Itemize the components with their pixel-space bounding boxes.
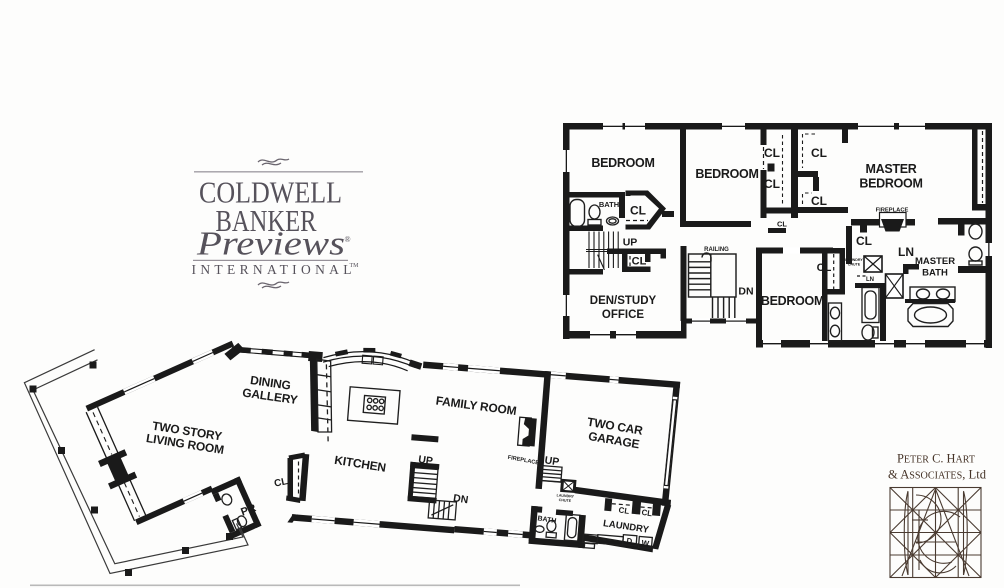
svg-text:RAILING: RAILING [704, 247, 729, 253]
svg-text:MASTER: MASTER [915, 256, 955, 267]
svg-text:CL: CL [811, 146, 827, 160]
svg-text:DN: DN [738, 286, 753, 298]
svg-text:CL: CL [273, 476, 288, 490]
svg-text:LN: LN [898, 245, 914, 259]
svg-text:FAMILY ROOM: FAMILY ROOM [435, 394, 517, 418]
svg-text:BEDROOM: BEDROOM [695, 167, 758, 181]
svg-text:TM: TM [350, 263, 360, 269]
svg-text:UP: UP [623, 237, 638, 249]
svg-text:LAUNDRY: LAUNDRY [845, 258, 863, 262]
svg-text:MASTER: MASTER [866, 162, 917, 176]
svg-text:CL: CL [764, 146, 780, 160]
svg-text:LN: LN [866, 277, 874, 283]
svg-text:UP: UP [417, 453, 433, 467]
svg-text:& ASSOCIATES, Ltd: & ASSOCIATES, Ltd [888, 467, 986, 482]
svg-text:CL: CL [817, 262, 832, 274]
svg-text:CL: CL [856, 234, 872, 248]
svg-text:LAUNDRY: LAUNDRY [602, 518, 650, 536]
svg-text:CL: CL [764, 177, 780, 191]
svg-text:KITCHEN: KITCHEN [333, 453, 386, 475]
svg-text:PETER C. HART: PETER C. HART [897, 451, 976, 466]
svg-text:Previews: Previews [196, 226, 345, 263]
svg-text:BEDROOM: BEDROOM [859, 177, 922, 191]
svg-text:CL: CL [811, 194, 827, 208]
svg-text:FIREPLACE: FIREPLACE [507, 455, 540, 467]
svg-text:BATH: BATH [922, 268, 948, 279]
svg-text:BATH: BATH [599, 200, 619, 209]
svg-text:DN: DN [452, 492, 469, 506]
svg-text:CHUTE: CHUTE [559, 498, 572, 503]
svg-text:BEDROOM: BEDROOM [591, 156, 654, 170]
svg-text:CL: CL [618, 505, 630, 515]
svg-text:CL: CL [632, 256, 647, 268]
svg-text:®: ® [344, 235, 350, 244]
svg-text:DEN/STUDY: DEN/STUDY [590, 295, 657, 307]
svg-text:BATH: BATH [537, 515, 557, 525]
svg-text:OFFICE: OFFICE [602, 309, 644, 321]
svg-text:BEDROOM: BEDROOM [761, 294, 824, 308]
svg-text:UP: UP [544, 454, 560, 468]
svg-text:FIREPLACE: FIREPLACE [876, 208, 909, 214]
svg-text:CL: CL [641, 508, 653, 518]
svg-text:INTERNATIONAL: INTERNATIONAL [192, 262, 352, 277]
svg-text:CL: CL [630, 204, 646, 218]
svg-text:CHUTE: CHUTE [848, 263, 861, 267]
svg-text:CL: CL [777, 220, 787, 229]
